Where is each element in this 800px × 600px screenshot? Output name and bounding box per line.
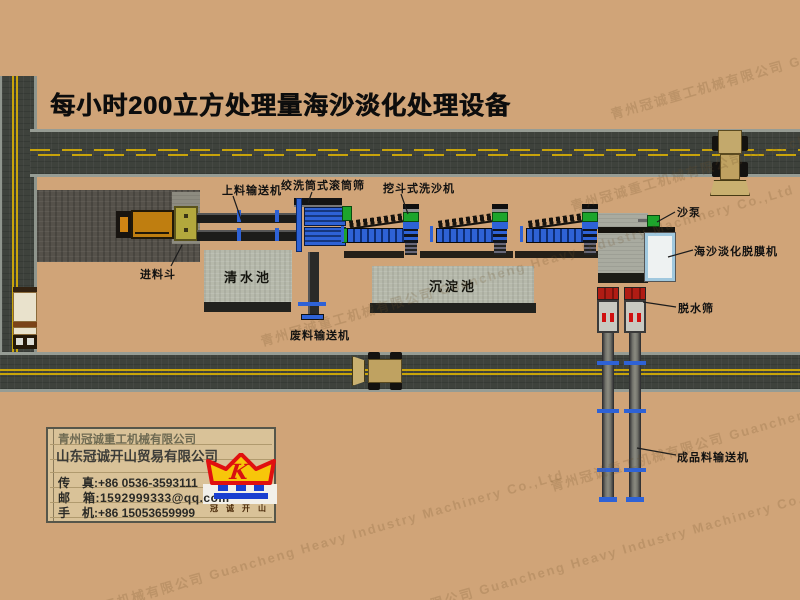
feed-hopper-dot-2 [184,228,188,232]
dewater1-red-mark-2 [610,313,614,322]
feed-hopper [174,206,198,241]
page-title: 每小时200立方处理量海沙淡化处理设备 [50,86,511,122]
product-conveyor-belt-2 [629,333,641,499]
leader-dewater-screen [643,302,676,307]
watermark-6: 青州冠诚重工机械有限公司 Guancheng Heavy Industry Ma… [298,479,800,600]
feed-conveyor-support-1 [237,210,241,222]
dump-truck-bed-line [135,232,169,234]
washer1-tower-lower [404,229,418,243]
truck-left-bed-2 [13,327,37,335]
dewater2-body [624,300,646,333]
dump-truck [116,210,174,239]
washer2-tower [492,204,508,257]
clean-water-pool-edge [204,302,291,312]
right-platform [598,213,648,275]
waste-conveyor-base [301,314,324,320]
logo-base-tab-3 [254,485,264,491]
washer3-bucket-row [526,228,585,243]
sedimentation-pool-edge [370,303,536,313]
logo-caption: 冠诚开山 [210,503,274,514]
conveyor1-bracket-1 [597,361,619,365]
dump-truck-windshield [120,217,128,232]
washer2-tower-foot [494,243,506,255]
dump-truck-bed [131,210,174,239]
washer1-tower [403,204,419,257]
washer3-tower-foot [584,243,596,255]
dewater-screen-1 [597,287,619,333]
loader-bottom-bucket [352,356,365,386]
logo-glyph: K [228,459,250,484]
watermark-5: 青州冠诚重工机械有限公司 Guancheng Heavy Industry Ma… [608,0,800,123]
company-name-secondary: 山东冠诚开山贸易有限公司 [56,445,218,465]
drum-screen-motor-1 [342,206,352,221]
waste-conveyor-belt [308,252,319,318]
road-top-center-dash-1 [30,149,800,151]
label-sand-pump: 沙泵 [677,204,701,220]
conveyor2-bracket-3 [624,468,646,472]
label-bucket-washer: 挖斗式洗沙机 [383,180,455,196]
loader-top-body-rear [718,130,742,154]
label-product-conveyor: 成品料输送机 [677,449,749,465]
conveyor1-end-cap [599,497,617,502]
washer3-start-tick [520,226,523,242]
logo-base-bar [214,493,268,499]
feed-conveyor-belt-1 [197,213,301,223]
loader-bottom-body [368,359,402,383]
washer-pool-wall-1 [344,251,404,258]
desal-machine [645,233,675,281]
sediment-pool-label: 沉淀池 [429,276,477,295]
dewater2-red-mark-1 [629,313,633,322]
truck-left-cab [13,335,37,349]
washer1-tower-foot [405,243,417,255]
diagram-canvas: 清水池 沉淀池 [0,0,800,600]
washer2-tower-motor [492,212,508,222]
truck-left-bed [13,292,37,322]
label-dewater-screen: 脱水筛 [678,300,714,316]
company-info-box: 青州冠诚重工机械有限公司 山东冠诚开山贸易有限公司 传 真:+86 0536-3… [46,427,276,523]
label-feed-conveyor: 上料输送机 [222,182,282,198]
drum-screen-left-post [296,198,302,252]
clean-pool-label: 清水池 [224,267,272,286]
mobile-row: 手 机:+86 15053659999 [58,504,195,521]
washer2-bucket-row [436,228,495,243]
washer2-start-tick [430,226,433,242]
product-conveyor-belt-1 [602,333,614,499]
wheel-loader-top [712,128,750,198]
loader-top-body-front [720,154,740,180]
feed-conveyor-belt-2 [197,230,301,241]
conveyor1-bracket-2 [597,409,619,413]
dewater1-red-mark-1 [602,313,606,322]
loader-top-wheel-4 [739,162,748,177]
right-platform-edge [598,273,648,283]
dump-truck-cab [116,211,131,238]
loader-top-bucket [710,180,750,196]
washer2-tower-blue [492,222,508,229]
dewater1-red-top [597,287,619,300]
logo-base-tab-1 [218,485,228,491]
washer2-tower-lower [493,229,507,243]
washer1-bucket-row [347,228,406,243]
leader-product-conveyor [637,448,676,455]
loader-bottom-wheel-4 [390,382,402,390]
watermark-3: 青州冠诚重工机械有限公司 Guancheng Heavy Industry Ma… [548,324,800,495]
feed-conveyor-support-2 [275,210,279,222]
dewater2-red-mark-2 [637,313,641,322]
washer3-tower [582,204,598,257]
dewater-screen-2 [624,287,646,333]
washer3-tower-lower [583,229,597,243]
clean-water-pool: 清水池 [204,250,292,302]
conveyor1-bracket-3 [597,468,619,472]
loader-bottom-wheel-2 [368,382,380,390]
washer1-tower-blue [403,222,419,229]
drum-screen-drum-2 [304,227,346,246]
dewater2-red-top [624,287,646,300]
sedimentation-pool: 沉淀池 [372,266,534,304]
label-feed-hopper: 进料斗 [140,266,176,282]
logo-base-tab-2 [236,485,246,491]
waste-conveyor-cross [298,302,326,306]
conveyor2-bracket-1 [624,361,646,365]
label-desal-machine: 海沙淡化脱膜机 [694,243,778,259]
truck-left-window-2 [27,338,34,345]
wheel-loader-bottom [352,352,404,390]
label-drum-screen: 绞洗筒式滚筒筛 [281,177,365,193]
feed-conveyor-support-3 [237,228,241,241]
sand-pump [647,215,660,227]
conveyor2-bracket-2 [624,409,646,413]
infobox-inner-rule [53,429,54,521]
feed-hopper-dot-1 [184,214,188,218]
washer1-tower-motor [403,212,419,222]
truck-left-window-1 [16,338,23,345]
road-top-horizontal [30,129,800,177]
truck-left-road [13,287,37,351]
conveyor2-end-cap [626,497,644,502]
drum-screen-drum-1 [304,207,346,226]
washer1-start-tick [341,226,344,242]
road-top-center-dash-2 [30,154,800,156]
washer3-tower-motor [582,212,598,222]
company-logo: K 冠诚开山 [206,453,278,515]
dewater1-body [597,300,619,333]
washer3-tower-blue [582,222,598,229]
feed-conveyor-support-4 [275,228,279,241]
label-waste-conveyor: 废料输送机 [290,327,350,343]
